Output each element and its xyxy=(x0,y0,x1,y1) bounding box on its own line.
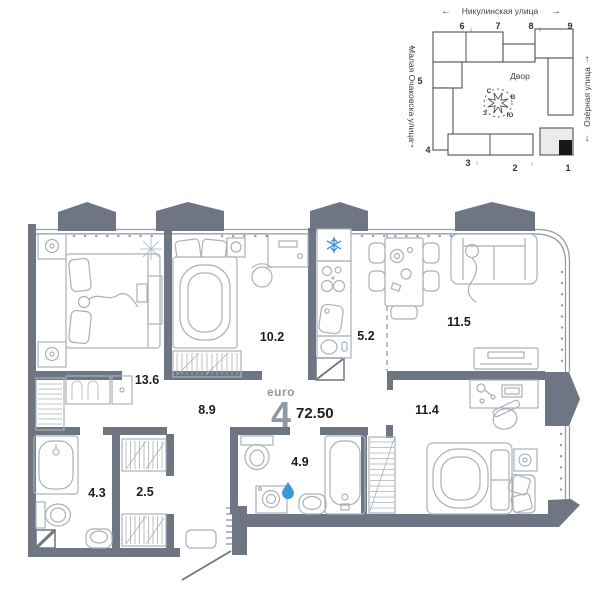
compass-west: З xyxy=(483,110,487,117)
chair-icon xyxy=(423,271,439,291)
room-bedroom-1: 13.6 xyxy=(38,234,162,387)
courtyard-label: Двор xyxy=(510,71,530,81)
compass-rose: С В З Ю xyxy=(483,88,516,119)
sofa-icon xyxy=(451,234,537,302)
building-number-2: 2 xyxy=(512,163,517,173)
building-number-5: 5 xyxy=(417,76,422,86)
floor-plan: 13.6 xyxy=(28,202,580,580)
room-label-bedroom-2: 10.2 xyxy=(260,330,284,344)
arrow-right-icon: → xyxy=(551,6,561,17)
closet-rack-icon xyxy=(369,437,395,513)
side-pier xyxy=(545,372,580,426)
compass-south: Ю xyxy=(507,112,514,119)
summary-rooms-count: 4 xyxy=(271,394,291,435)
room-label-wardrobe: 2.5 xyxy=(136,485,153,499)
summary-total-area: 72.50 xyxy=(296,405,334,422)
sink-icon xyxy=(86,529,112,548)
street-top-label: Никулинская улица xyxy=(462,6,539,16)
plant-icon xyxy=(140,238,162,260)
site-plan: Никулинская улица ← → Малая Очаковска ул… xyxy=(407,6,592,173)
desk-icon xyxy=(268,234,308,267)
room-bathroom-2: 4.9 xyxy=(241,436,365,514)
room-living: 11.5 xyxy=(447,234,538,369)
entrance xyxy=(182,508,232,580)
compass-east: В xyxy=(511,94,516,101)
bench-icon xyxy=(391,306,417,319)
room-label-bathroom-1: 4.3 xyxy=(88,486,105,500)
entrance-arrow-icon: ↓ xyxy=(469,26,472,33)
room-kitchen: 5.2 xyxy=(317,229,439,371)
nightstand-icon xyxy=(514,449,537,471)
building-number-1: 1 xyxy=(565,163,570,173)
fridge-icon xyxy=(317,229,351,261)
building-number-8: 8 xyxy=(528,21,533,31)
shaft-icon xyxy=(36,530,55,548)
arrow-left-icon: ← xyxy=(441,6,451,17)
chair-icon xyxy=(423,243,439,263)
room-bedroom-2: 10.2 xyxy=(173,234,308,377)
room-label-kitchen: 5.2 xyxy=(357,329,374,343)
cutting-board-icon xyxy=(318,304,344,335)
toilet-icon xyxy=(36,502,71,528)
arrow-up-icon: ↑ xyxy=(410,43,415,54)
arrow-down-icon: ↓ xyxy=(585,133,590,144)
room-wardrobe: 2.5 xyxy=(122,439,166,546)
room-label-bedroom-3: 11.4 xyxy=(415,403,439,417)
bed-icon xyxy=(173,257,237,348)
floorplan-page: Никулинская улица ← → Малая Очаковска ул… xyxy=(0,0,600,600)
wall-bottom-right xyxy=(240,514,550,527)
kitchen-door xyxy=(316,358,344,380)
wardrobe-rack-icon xyxy=(122,439,166,471)
room-label-hallway: 8.9 xyxy=(198,403,215,417)
speaker-icon xyxy=(227,238,245,257)
entrance-arrow-icon: ↓ xyxy=(538,26,541,33)
speaker-icon xyxy=(38,234,66,259)
building-number-7: 7 xyxy=(495,21,500,31)
room-hallway: 8.9 euro 4 72.50 xyxy=(36,376,334,435)
washing-machine-icon xyxy=(256,486,287,513)
shoe-rack-icon xyxy=(36,378,64,430)
wall-bottom-angle xyxy=(548,499,580,527)
floorplan-canvas: Никулинская улица ← → Малая Очаковска ул… xyxy=(0,0,600,600)
chair-icon xyxy=(369,243,385,263)
sink-icon xyxy=(299,494,326,514)
bathtub-icon xyxy=(325,436,365,514)
compass-north: С xyxy=(487,88,492,95)
tv-stand-icon xyxy=(474,348,538,369)
room-label-bedroom-1: 13.6 xyxy=(135,373,159,387)
entrance-arrow-icon: ↑ xyxy=(530,161,533,168)
street-left-label: Малая Очаковска улица xyxy=(407,46,417,142)
wall-left xyxy=(28,224,36,557)
building-number-3: 3 xyxy=(465,158,470,168)
street-right-label: Озёрная улица xyxy=(582,67,592,127)
room-label-bathroom-2: 4.9 xyxy=(291,455,308,469)
building-number-4: 4 xyxy=(425,145,430,155)
site-buildings xyxy=(433,29,573,155)
room-bedroom-3: 11.4 xyxy=(369,380,538,514)
doormat-icon xyxy=(186,530,216,548)
arrow-up-icon: ↑ xyxy=(585,54,590,65)
bathtub-icon xyxy=(34,436,78,494)
entrance-arrow-icon: ↑ xyxy=(475,160,478,167)
speaker-icon xyxy=(38,342,66,367)
entrance-door-swing xyxy=(182,551,231,580)
toilet-icon xyxy=(241,436,273,470)
building-number-9: 9 xyxy=(567,21,572,31)
wall-bottom-left xyxy=(28,548,180,557)
water-drop-icon xyxy=(282,482,294,499)
coat-hanger-icon xyxy=(66,376,110,404)
bed-icon xyxy=(427,443,512,514)
selected-section-marker xyxy=(559,140,572,155)
stove-icon xyxy=(317,261,351,336)
chair-icon xyxy=(369,271,385,291)
double-bed-icon xyxy=(66,254,160,348)
kitchen-sink-icon xyxy=(317,336,351,358)
arrow-down-icon: ↓ xyxy=(410,139,415,150)
room-bathroom-1: 4.3 xyxy=(34,436,112,548)
room-label-living: 11.5 xyxy=(447,315,471,329)
building-number-6: 6 xyxy=(459,21,464,31)
wardrobe-rack-icon xyxy=(122,514,166,546)
hall-cabinet-icon xyxy=(112,376,132,404)
dining-table-icon xyxy=(369,238,439,319)
desk-icon xyxy=(470,380,538,408)
